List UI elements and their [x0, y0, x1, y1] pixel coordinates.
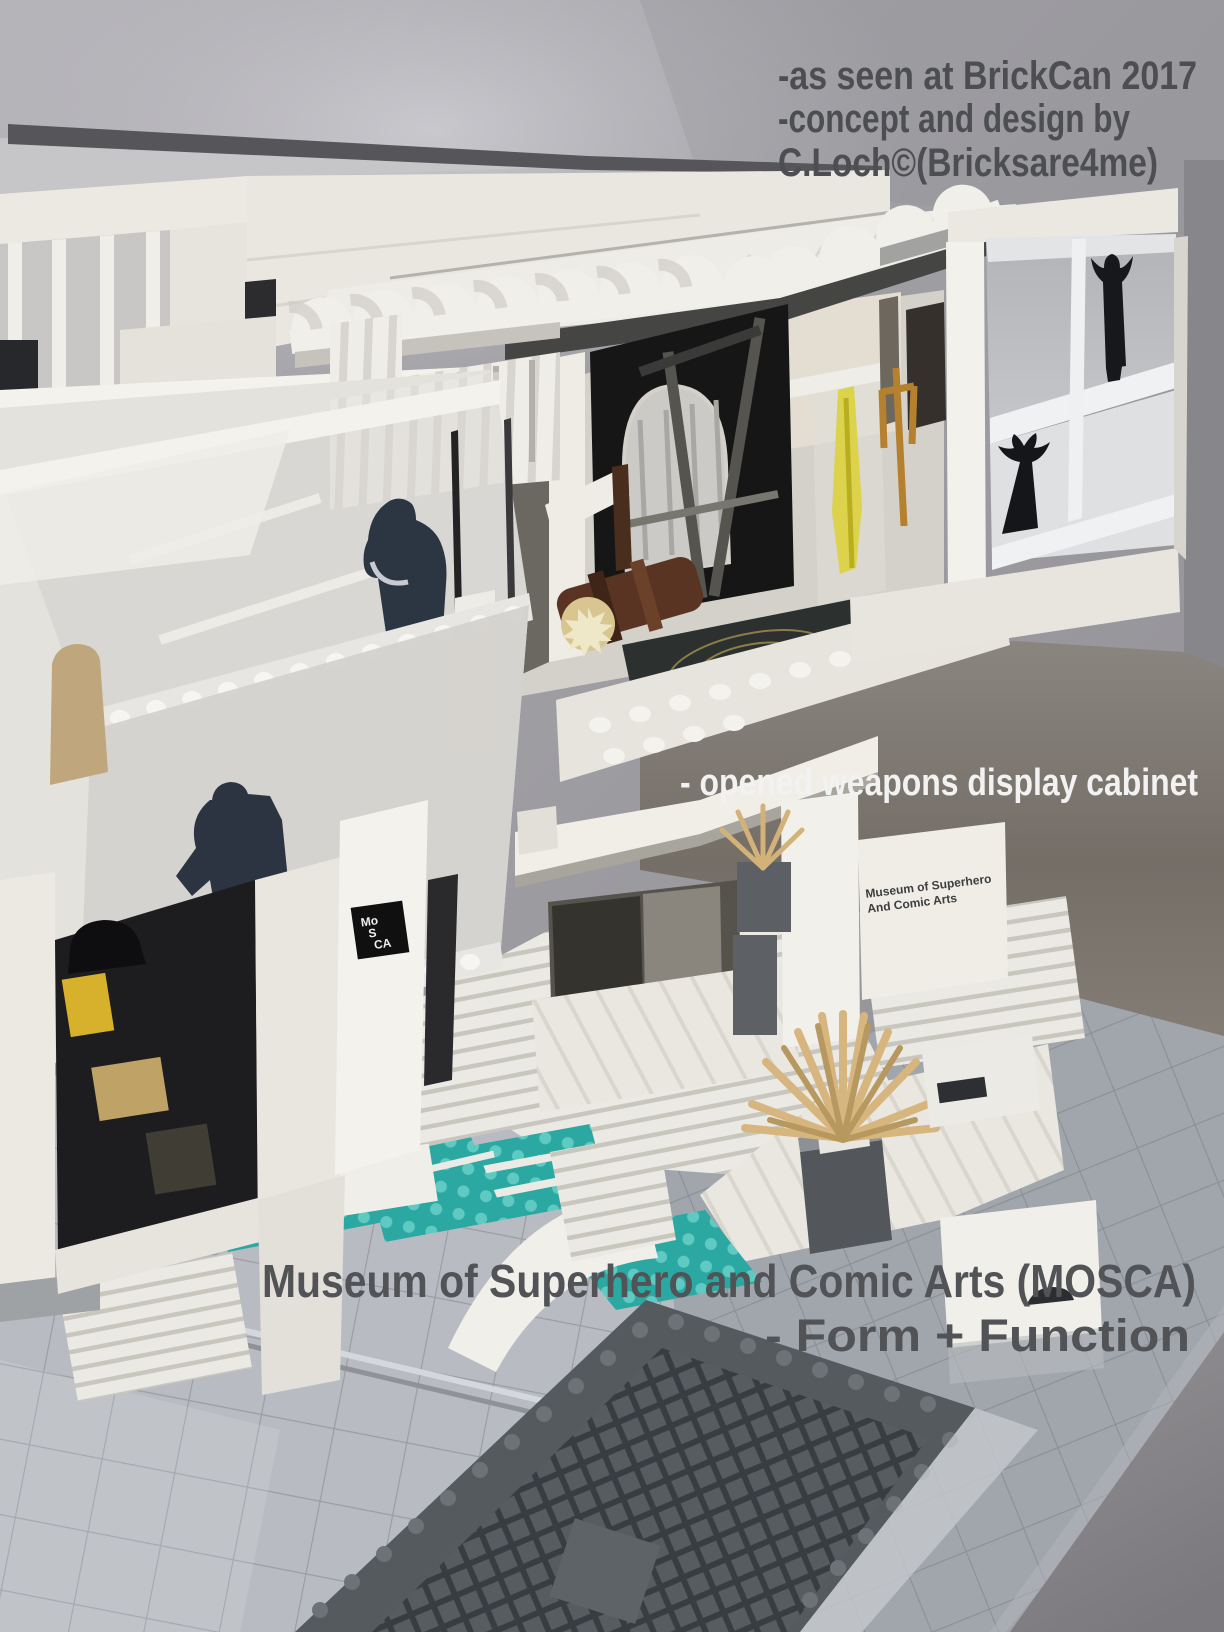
svg-text:Museum of Superhero and Comic: Museum of Superhero and Comic Arts (MOSC… — [262, 1255, 1196, 1307]
svg-text:-concept and design by: -concept and design by — [778, 97, 1131, 141]
svg-text:- opened weapons display cabin: - opened weapons display cabinet — [680, 762, 1198, 804]
svg-text:-as seen at BrickCan 2017: -as seen at BrickCan 2017 — [778, 54, 1197, 98]
svg-text:C.Loch©(Bricksare4me): C.Loch©(Bricksare4me) — [778, 141, 1158, 185]
svg-text:CA: CA — [373, 936, 392, 952]
svg-text:- Form + Function: - Form + Function — [765, 1310, 1190, 1361]
